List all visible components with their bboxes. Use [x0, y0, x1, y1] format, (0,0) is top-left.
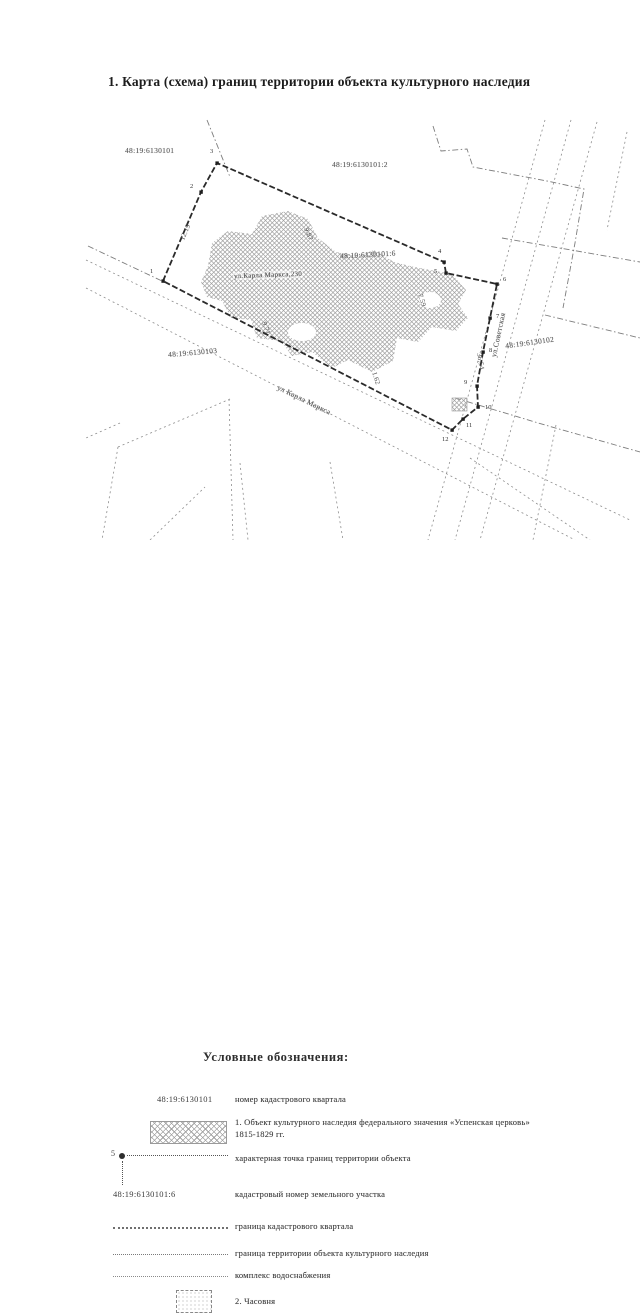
point-number: 4: [438, 248, 441, 255]
point-number: 2: [190, 183, 193, 190]
legend-water-supply-line: [113, 1276, 228, 1277]
legend-quarter-boundary-line: [113, 1227, 228, 1229]
point-number: 1: [150, 268, 153, 275]
point-number: 8: [489, 347, 492, 354]
legend-territory-boundary-line: [113, 1254, 228, 1255]
legend-row-text: граница кадастрового квартала: [235, 1221, 353, 1233]
legend-row-text: 2. Часовня: [235, 1296, 275, 1308]
point-number: 6: [503, 276, 506, 283]
legend-row-text: комплекс водоснабжения: [235, 1270, 330, 1282]
point-number: 9: [464, 379, 467, 386]
legend-row-text: граница территории объекта культурного н…: [235, 1248, 429, 1260]
scanned-document-page: { "page": { "title": "1. Карта (схема) г…: [0, 0, 640, 905]
point-number: 5: [434, 268, 437, 275]
map-area: 48:19:6130101 48:19:6130101:2 48:19:6130…: [0, 0, 640, 540]
legend-point-dot-icon: [119, 1153, 125, 1159]
legend-hatch-swatch: [150, 1121, 227, 1144]
point-number: 12: [442, 436, 449, 443]
legend-parcel-code: 48:19:6130101:6: [113, 1189, 176, 1199]
map-canvas: [0, 0, 640, 540]
point-number: 10: [485, 404, 492, 411]
label-quarter-top-left: 48:19:6130101: [125, 146, 174, 155]
legend-point-hline: [127, 1155, 228, 1156]
legend-row-text: 1. Объект культурного наследия федеральн…: [235, 1117, 535, 1140]
legend-row-text: номер кадастрового квартала: [235, 1094, 346, 1106]
footprint-gap: [288, 323, 316, 341]
legend-quarter-code: 48:19:6130101: [157, 1094, 212, 1104]
legend-point-number: 5: [111, 1149, 115, 1158]
legend-chapel-swatch: [176, 1290, 212, 1313]
label-parcel-top: 48:19:6130101:2: [332, 160, 388, 169]
chapel-footprint: [452, 398, 467, 411]
legend-row-text: характерная точка границ территории объе…: [235, 1153, 411, 1165]
point-number: 7: [496, 313, 499, 320]
legend-point-vline: [122, 1161, 123, 1185]
church-footprint: [201, 211, 468, 372]
legend-row-text: кадастровый номер земельного участка: [235, 1189, 385, 1201]
legend-heading: Условные обозначения:: [203, 1050, 349, 1065]
point-number: 11: [466, 422, 472, 429]
legend: Условные обозначения: 48:19:6130101 номе…: [0, 520, 640, 820]
point-number: 3: [210, 148, 213, 155]
